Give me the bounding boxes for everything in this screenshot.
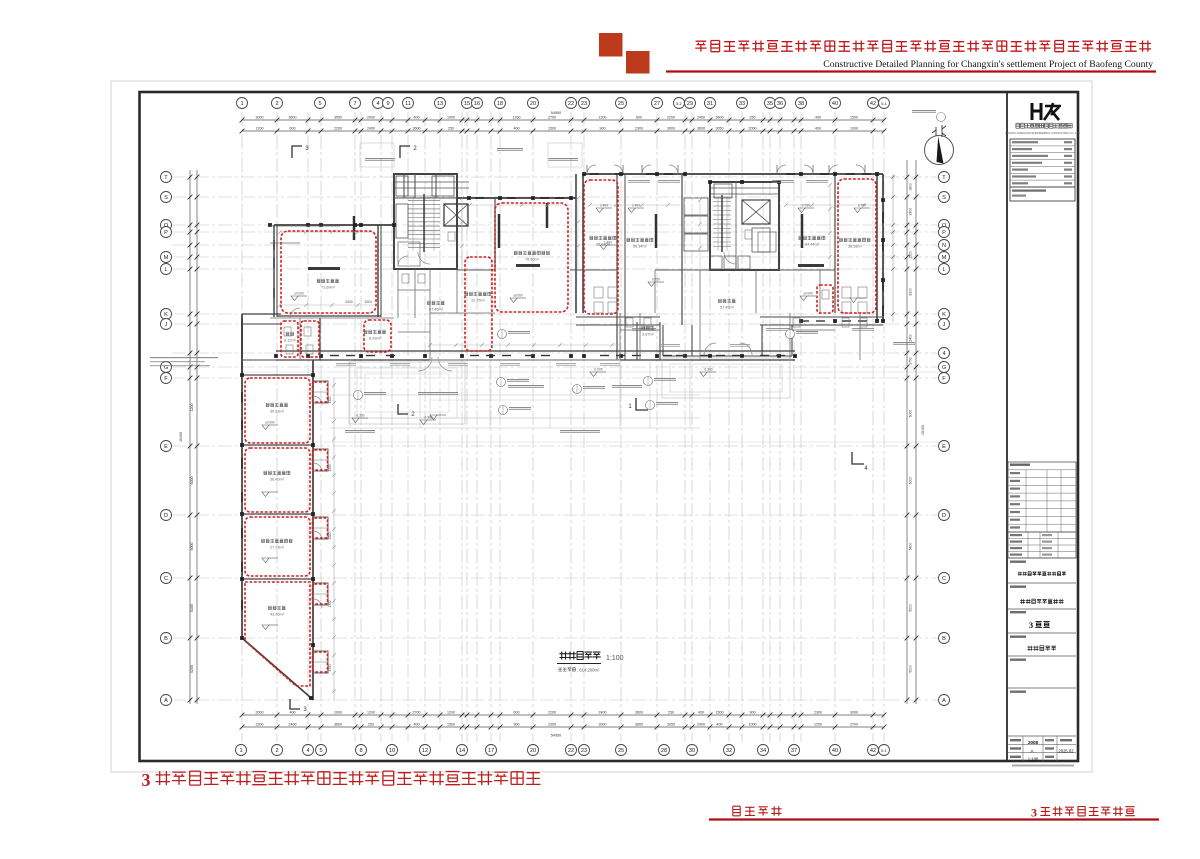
svg-text:1500: 1500 xyxy=(909,251,913,259)
svg-text:L: L xyxy=(164,267,167,273)
svg-text:1200: 1200 xyxy=(256,126,264,130)
svg-text:2400: 2400 xyxy=(599,710,607,714)
svg-text:57.45m²: 57.45m² xyxy=(429,308,444,312)
svg-text:2200: 2200 xyxy=(548,710,556,714)
svg-text:L: L xyxy=(942,267,945,273)
svg-text:71.69m²: 71.69m² xyxy=(321,286,336,290)
svg-text:1300: 1300 xyxy=(328,664,332,671)
svg-text:27.29m²: 27.29m² xyxy=(270,546,285,550)
svg-text:1200: 1200 xyxy=(814,722,822,726)
svg-text:600: 600 xyxy=(636,115,642,119)
svg-text:35: 35 xyxy=(767,101,773,107)
svg-text:250: 250 xyxy=(750,115,756,119)
svg-text:43.26m²: 43.26m² xyxy=(270,613,285,617)
svg-text:F: F xyxy=(942,376,946,382)
svg-text:250: 250 xyxy=(668,710,674,714)
svg-text:900: 900 xyxy=(514,722,520,726)
svg-text:A: A xyxy=(164,698,168,704)
svg-text:23: 23 xyxy=(581,101,587,107)
svg-text:6.93m²: 6.93m² xyxy=(369,337,382,341)
svg-text:-0.300: -0.300 xyxy=(423,416,432,420)
svg-text:2700: 2700 xyxy=(850,722,858,726)
svg-text:: 614.200m²: : 614.200m² xyxy=(577,668,600,673)
svg-text:2008: 2008 xyxy=(1028,740,1039,745)
svg-text:57.45m²: 57.45m² xyxy=(720,306,735,310)
svg-text:1200: 1200 xyxy=(513,115,521,119)
svg-text:1000: 1000 xyxy=(850,126,858,130)
svg-text:3.87m²: 3.87m² xyxy=(642,333,655,337)
svg-text:2000: 2000 xyxy=(749,126,757,130)
svg-text:5: 5 xyxy=(319,748,322,754)
svg-text:1500: 1500 xyxy=(850,115,858,119)
svg-text:J: J xyxy=(165,322,168,328)
svg-text:3600: 3600 xyxy=(289,115,297,119)
svg-text:11: 11 xyxy=(405,101,411,107)
svg-text:6000: 6000 xyxy=(190,543,194,551)
svg-text:2300: 2300 xyxy=(635,126,643,130)
svg-text:22: 22 xyxy=(568,101,574,107)
svg-text:0.750: 0.750 xyxy=(858,204,866,208)
svg-text:36: 36 xyxy=(777,101,783,107)
svg-text:23: 23 xyxy=(581,748,587,754)
svg-text:3600: 3600 xyxy=(635,710,643,714)
svg-text:3600: 3600 xyxy=(697,126,705,130)
svg-text:T: T xyxy=(164,175,168,181)
svg-text:400: 400 xyxy=(514,126,520,130)
svg-text:S: S xyxy=(942,195,946,201)
svg-text:K: K xyxy=(942,312,946,318)
svg-text:F: F xyxy=(164,376,168,382)
svg-text:K: K xyxy=(164,312,168,318)
svg-text:2700: 2700 xyxy=(413,710,421,714)
svg-text:1: 1 xyxy=(239,748,242,754)
svg-text:54950: 54950 xyxy=(551,734,562,738)
svg-text:36.58m²: 36.58m² xyxy=(848,245,863,249)
svg-text:1000: 1000 xyxy=(447,115,455,119)
svg-text:40: 40 xyxy=(832,101,838,107)
svg-text:E: E xyxy=(164,444,168,450)
svg-text:3300: 3300 xyxy=(909,288,913,296)
svg-text:12.75m²: 12.75m² xyxy=(471,299,486,303)
svg-text:1000: 1000 xyxy=(334,710,342,714)
svg-text:45400: 45400 xyxy=(921,425,925,435)
svg-text:J: J xyxy=(943,322,946,328)
svg-text:1200: 1200 xyxy=(367,710,375,714)
svg-text:3000: 3000 xyxy=(599,722,607,726)
svg-text:3: 3 xyxy=(1029,620,1033,630)
svg-text:3000: 3000 xyxy=(850,710,858,714)
svg-text:3600: 3600 xyxy=(413,126,421,130)
svg-text:6.12m²: 6.12m² xyxy=(284,339,297,343)
svg-text:1.400: 1.400 xyxy=(600,204,608,208)
svg-text:5400: 5400 xyxy=(909,543,913,551)
svg-text:3: 3 xyxy=(1031,806,1037,820)
svg-text:250: 250 xyxy=(368,722,374,726)
svg-text:7: 7 xyxy=(353,101,356,107)
svg-text:34: 34 xyxy=(760,748,766,754)
svg-text:2400: 2400 xyxy=(909,334,913,342)
svg-text:2200: 2200 xyxy=(334,126,342,130)
svg-text:5400: 5400 xyxy=(190,604,194,612)
svg-text:1200: 1200 xyxy=(190,404,194,412)
svg-text:±0.000: ±0.000 xyxy=(265,421,275,425)
svg-text:400: 400 xyxy=(815,115,821,119)
svg-text:D: D xyxy=(164,513,168,519)
svg-text:3000: 3000 xyxy=(667,126,675,130)
svg-text:C: C xyxy=(164,576,168,582)
svg-text:3050: 3050 xyxy=(667,722,675,726)
svg-text:6000: 6000 xyxy=(190,477,194,485)
svg-text:M: M xyxy=(942,255,947,261)
svg-text:14: 14 xyxy=(459,748,465,754)
svg-text:2000: 2000 xyxy=(367,115,375,119)
svg-text:30.23m²: 30.23m² xyxy=(270,410,285,414)
svg-text:2: 2 xyxy=(275,101,278,107)
svg-text:20: 20 xyxy=(530,748,536,754)
svg-text:8: 8 xyxy=(359,748,362,754)
svg-text:±0.000: ±0.000 xyxy=(294,292,304,296)
svg-text:25: 25 xyxy=(618,101,624,107)
svg-text:±0.000: ±0.000 xyxy=(513,294,523,298)
svg-text:16: 16 xyxy=(474,101,480,107)
svg-text:-0.300: -0.300 xyxy=(355,414,364,418)
svg-text:31: 31 xyxy=(707,101,713,107)
svg-text:400: 400 xyxy=(414,722,420,726)
svg-text:1500: 1500 xyxy=(447,722,455,726)
svg-text:56.34m²: 56.34m² xyxy=(633,245,648,249)
svg-text:1500: 1500 xyxy=(716,710,724,714)
svg-text:2200: 2200 xyxy=(256,722,264,726)
svg-text:1500: 1500 xyxy=(548,126,556,130)
svg-text:27: 27 xyxy=(654,101,660,107)
svg-text:1300: 1300 xyxy=(328,532,332,539)
svg-text:P: P xyxy=(942,230,946,236)
svg-text:2025.02: 2025.02 xyxy=(1058,749,1074,754)
svg-text:9: 9 xyxy=(386,101,389,107)
svg-text:2300: 2300 xyxy=(548,722,556,726)
svg-text:22: 22 xyxy=(568,748,574,754)
svg-text:2000: 2000 xyxy=(256,710,264,714)
svg-text:20: 20 xyxy=(530,101,536,107)
svg-text:28: 28 xyxy=(661,748,667,754)
svg-text:400: 400 xyxy=(414,115,420,119)
svg-text:5: 5 xyxy=(318,101,321,107)
svg-text:2400: 2400 xyxy=(367,126,375,130)
svg-text:1000: 1000 xyxy=(749,722,757,726)
svg-text:0.750: 0.750 xyxy=(802,204,810,208)
svg-text:33: 33 xyxy=(739,101,745,107)
svg-text:T: T xyxy=(942,175,946,181)
svg-text:4: 4 xyxy=(942,351,945,357)
svg-text:B: B xyxy=(942,636,946,642)
svg-text:2000: 2000 xyxy=(697,722,705,726)
svg-text:Constructive Detailed Planning: Constructive Detailed Planning for Chang… xyxy=(823,59,1153,70)
svg-text:N: N xyxy=(942,243,946,249)
svg-text:2400: 2400 xyxy=(289,722,297,726)
svg-text:76.65m²: 76.65m² xyxy=(525,258,540,262)
svg-text:1000: 1000 xyxy=(364,300,372,304)
svg-text:-0.005: -0.005 xyxy=(593,368,602,372)
svg-text:1750: 1750 xyxy=(909,357,913,365)
svg-text:5-2: 5-2 xyxy=(676,102,682,106)
svg-text:42: 42 xyxy=(870,748,876,754)
svg-text:900: 900 xyxy=(750,710,756,714)
svg-text:5200: 5200 xyxy=(190,665,194,673)
svg-text:1800: 1800 xyxy=(909,183,913,191)
svg-text:38: 38 xyxy=(798,101,804,107)
svg-text:3600: 3600 xyxy=(334,722,342,726)
svg-text:1300: 1300 xyxy=(328,464,332,471)
svg-text:1.400: 1.400 xyxy=(604,241,612,245)
svg-text:400: 400 xyxy=(698,710,704,714)
svg-text:1:100: 1:100 xyxy=(1028,757,1039,762)
svg-text:45400: 45400 xyxy=(179,432,183,442)
svg-text:5200: 5200 xyxy=(909,665,913,673)
svg-text:B: B xyxy=(164,636,168,642)
svg-text:42: 42 xyxy=(870,101,876,107)
svg-text:15: 15 xyxy=(464,101,470,107)
svg-text:3600: 3600 xyxy=(716,115,724,119)
svg-text:3000: 3000 xyxy=(256,115,264,119)
svg-text:±0.000: ±0.000 xyxy=(803,292,813,296)
svg-text:A: A xyxy=(942,698,946,704)
svg-text:10: 10 xyxy=(389,748,395,754)
svg-text:2400: 2400 xyxy=(697,115,705,119)
svg-text:30: 30 xyxy=(689,748,695,754)
svg-text:4: 4 xyxy=(376,101,379,107)
svg-text:A: A xyxy=(1030,749,1033,754)
svg-text:G: G xyxy=(942,365,946,371)
svg-text:2400: 2400 xyxy=(909,208,913,216)
svg-text:2300: 2300 xyxy=(814,710,822,714)
svg-text:40: 40 xyxy=(832,748,838,754)
svg-text:32: 32 xyxy=(726,748,732,754)
svg-text:64.44m²: 64.44m² xyxy=(805,243,820,247)
svg-text:2: 2 xyxy=(275,748,278,754)
svg-text:2200: 2200 xyxy=(667,115,675,119)
svg-text:C: C xyxy=(942,576,946,582)
svg-text:3050: 3050 xyxy=(334,115,342,119)
svg-text:3: 3 xyxy=(142,770,151,790)
svg-text:1200: 1200 xyxy=(447,710,455,714)
svg-text:2700: 2700 xyxy=(548,115,556,119)
svg-text:36.40m²: 36.40m² xyxy=(270,478,285,482)
svg-text:400: 400 xyxy=(815,126,821,130)
svg-text:6000: 6000 xyxy=(909,477,913,485)
svg-text:0.750: 0.750 xyxy=(652,278,660,282)
svg-text:1200: 1200 xyxy=(599,115,607,119)
svg-text:1300: 1300 xyxy=(328,396,332,403)
svg-text:900: 900 xyxy=(600,126,606,130)
svg-text:M: M xyxy=(164,255,169,261)
svg-text:17: 17 xyxy=(488,748,494,754)
svg-text:1:100: 1:100 xyxy=(606,655,624,662)
svg-text:E: E xyxy=(942,444,946,450)
svg-text:D: D xyxy=(942,513,946,519)
svg-text:1: 1 xyxy=(240,101,243,107)
svg-text:P: P xyxy=(164,230,168,236)
svg-text:37: 37 xyxy=(791,748,797,754)
svg-text:3050: 3050 xyxy=(716,126,724,130)
svg-text:1.400: 1.400 xyxy=(632,204,640,208)
svg-text:-0.300: -0.300 xyxy=(703,368,712,372)
svg-text:13: 13 xyxy=(437,101,443,107)
svg-text:1300: 1300 xyxy=(328,600,332,607)
svg-text:6000: 6000 xyxy=(909,410,913,418)
svg-text:250: 250 xyxy=(448,126,454,130)
svg-text:3600: 3600 xyxy=(635,722,643,726)
svg-text:ZHONGYUHENGXIN ENGINEERING CON: ZHONGYUHENGXIN ENGINEERING CONSULTING CO… xyxy=(1005,131,1080,135)
svg-text:5200: 5200 xyxy=(909,604,913,612)
svg-text:600: 600 xyxy=(290,126,296,130)
svg-text:S: S xyxy=(164,195,168,201)
svg-text:29: 29 xyxy=(687,101,693,107)
svg-text:600: 600 xyxy=(514,710,520,714)
svg-text:25: 25 xyxy=(618,748,624,754)
svg-text:5-1: 5-1 xyxy=(881,749,887,753)
svg-text:5-1: 5-1 xyxy=(881,102,887,106)
svg-text:400: 400 xyxy=(290,710,296,714)
svg-text:18: 18 xyxy=(497,101,503,107)
svg-text:4: 4 xyxy=(306,748,309,754)
svg-text:400: 400 xyxy=(717,722,723,726)
svg-text:12: 12 xyxy=(422,748,428,754)
svg-text:2400: 2400 xyxy=(345,300,353,304)
